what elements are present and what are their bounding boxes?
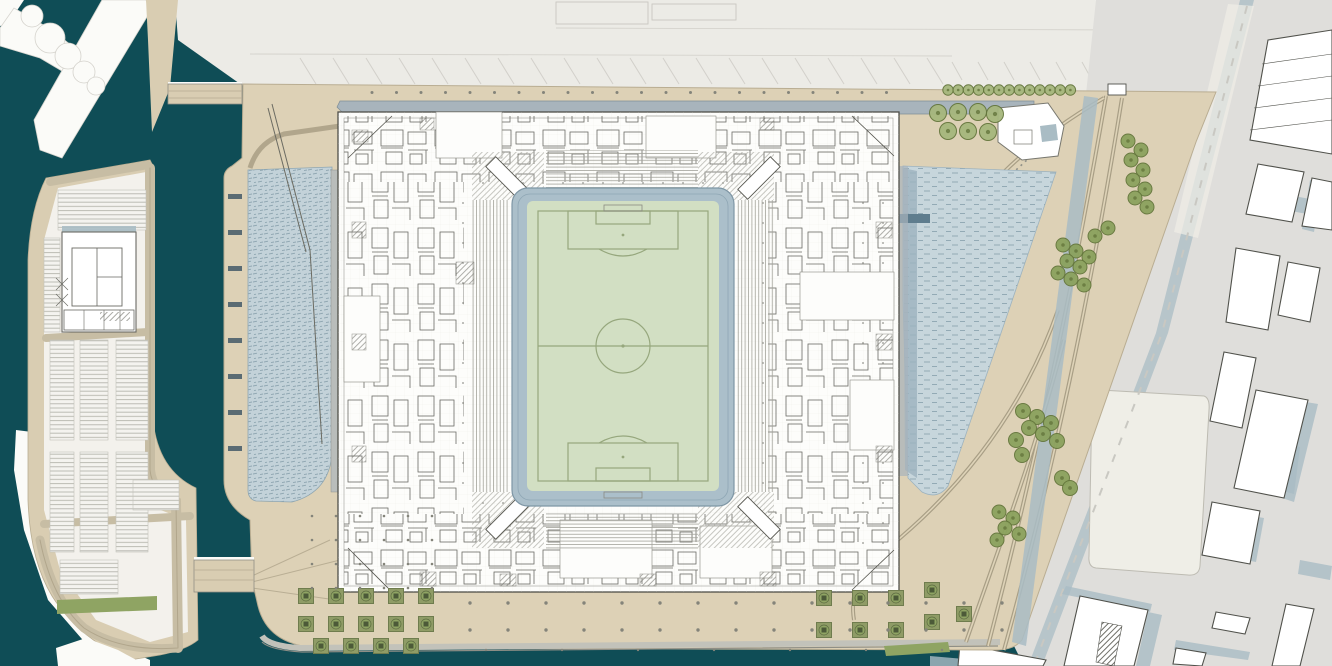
tree-center — [1143, 187, 1147, 191]
bollard-dot — [468, 601, 471, 604]
plaza-dot — [383, 587, 386, 590]
bollard-dot — [787, 91, 790, 94]
tree-center — [1049, 89, 1052, 92]
planter-grate — [364, 622, 369, 627]
north-bridge-deck — [168, 84, 242, 104]
mooring-dolphin — [228, 266, 242, 271]
tree-center — [947, 89, 950, 92]
bollard-dot — [493, 91, 496, 94]
planter-grate — [349, 644, 354, 649]
plaza-dot — [335, 587, 338, 590]
mooring-dolphin — [228, 302, 242, 307]
north-bridge — [168, 82, 242, 104]
tree-center — [1059, 89, 1062, 92]
planter-grate — [424, 594, 429, 599]
tree-center — [1039, 89, 1042, 92]
bollard-dot — [689, 91, 692, 94]
bollard-dot — [468, 628, 471, 631]
south-bridge — [194, 557, 254, 592]
stair-core — [760, 118, 774, 130]
west-water-texture — [248, 167, 332, 502]
planter-grate — [822, 596, 827, 601]
bollard-dot — [485, 649, 487, 651]
stair-core — [760, 572, 776, 586]
bollard-dot — [616, 91, 619, 94]
bollard-dot — [620, 628, 623, 631]
tree-center — [1126, 139, 1130, 143]
bollard-dot — [582, 628, 585, 631]
tree-center — [957, 89, 960, 92]
stadium-hall — [436, 112, 502, 158]
pier-building-plant — [100, 312, 130, 321]
planter-grate — [394, 594, 399, 599]
plaza-dot — [407, 563, 410, 566]
bollard-dot — [848, 628, 851, 631]
bollard-dot — [885, 91, 888, 94]
mooring-dolphin — [228, 410, 242, 415]
plaza-dot — [359, 515, 362, 518]
planter-grate — [930, 620, 935, 625]
stair-core — [456, 262, 474, 284]
tree-center — [1078, 265, 1082, 269]
planter-grate — [409, 644, 414, 649]
tree-center — [1129, 158, 1133, 162]
parking-rows — [44, 238, 60, 332]
bollard-dot — [772, 628, 775, 631]
tree-center — [1020, 453, 1024, 457]
tree-center — [1060, 476, 1064, 480]
plaza-dot — [431, 563, 434, 566]
tree-center — [1065, 259, 1069, 263]
tree-center — [1018, 89, 1021, 92]
stair-core — [876, 334, 892, 350]
urban-building — [1202, 502, 1260, 564]
tree-center — [946, 129, 950, 133]
bollard-dot — [395, 91, 398, 94]
stair-core — [500, 574, 516, 586]
south-bridge-deck — [194, 560, 254, 592]
stair-core — [352, 130, 368, 142]
plaza-dot — [431, 515, 434, 518]
tree-center — [1017, 532, 1021, 536]
tree-center — [1074, 249, 1078, 253]
bollard-dot — [469, 91, 472, 94]
tree-center — [998, 89, 1001, 92]
bollard-dot — [941, 649, 943, 651]
bollard-dot — [542, 91, 545, 94]
tree-center — [1082, 283, 1086, 287]
bollard-dot — [772, 601, 775, 604]
bollard-dot — [696, 628, 699, 631]
stadium-hall — [850, 380, 894, 450]
planter-grate — [858, 596, 863, 601]
bollard-dot — [812, 91, 815, 94]
bollard-dot — [620, 601, 623, 604]
bollard-dot — [1000, 628, 1003, 631]
bollard-dot — [637, 649, 639, 651]
planter-grate — [364, 594, 369, 599]
bollard-dot — [836, 91, 839, 94]
plaza-dot — [311, 563, 314, 566]
planter-grate — [424, 622, 429, 627]
tree-center — [1133, 196, 1137, 200]
stair-core — [876, 446, 892, 462]
planter-grate — [394, 622, 399, 627]
bollard-dot — [371, 91, 374, 94]
bollard-dot — [658, 628, 661, 631]
bollard-dot — [506, 601, 509, 604]
ne-building-roof-piece — [1040, 124, 1058, 142]
planter-grate — [304, 594, 309, 599]
bollard-dot — [582, 601, 585, 604]
tree-center — [995, 538, 999, 542]
bollard-dot — [734, 628, 737, 631]
mooring-dolphin — [228, 374, 242, 379]
tree-center — [1106, 226, 1110, 230]
tree-center — [1049, 421, 1053, 425]
plaza-dot — [359, 563, 362, 566]
bollard-dot — [665, 91, 668, 94]
tree-center — [977, 89, 980, 92]
plaza-dot — [359, 587, 362, 590]
mooring-dolphin — [228, 230, 242, 235]
tree-center — [956, 110, 960, 114]
planter-grate — [894, 628, 899, 633]
planter-grate — [319, 644, 324, 649]
mooring-dolphin — [228, 338, 242, 343]
planter-grate — [858, 628, 863, 633]
tree-center — [967, 89, 970, 92]
tree-center — [1027, 426, 1031, 430]
bollard-dot — [658, 601, 661, 604]
bollard-dot — [567, 91, 570, 94]
planter-grate — [894, 596, 899, 601]
tree-center — [976, 110, 980, 114]
tree-center — [997, 510, 1001, 514]
mooring-dolphin — [228, 194, 242, 199]
bollard-dot — [861, 91, 864, 94]
tree-center — [1014, 438, 1018, 442]
bollard-dot — [444, 91, 447, 94]
plaza-dot — [407, 539, 410, 542]
tree-center — [1131, 178, 1135, 182]
tree-center — [1008, 89, 1011, 92]
plaza-dot — [431, 587, 434, 590]
tree-center — [966, 129, 970, 133]
tree-center — [1087, 255, 1091, 259]
bollard-dot — [848, 601, 851, 604]
bollard-dot — [962, 628, 965, 631]
parking-rows — [50, 340, 74, 440]
bollard-dot — [518, 91, 521, 94]
planter-grate — [379, 644, 384, 649]
tree-center — [1056, 271, 1060, 275]
planter-grate — [304, 622, 309, 627]
parking-rows — [133, 480, 179, 510]
stair-core — [352, 446, 366, 462]
parking-rows — [60, 560, 118, 594]
bollard-dot — [763, 91, 766, 94]
bollard-dot — [420, 91, 423, 94]
tree-center — [1145, 205, 1149, 209]
parking-rows — [116, 340, 148, 440]
development-parcel — [1089, 390, 1209, 575]
plaza-dot — [383, 539, 386, 542]
stair-core — [420, 572, 436, 586]
bollard-dot — [886, 628, 889, 631]
stair-core — [420, 118, 434, 130]
stair-core — [352, 222, 366, 238]
plaza-dot — [311, 515, 314, 518]
bollard-dot — [544, 628, 547, 631]
plaza-dot — [383, 515, 386, 518]
plaza-dot — [431, 539, 434, 542]
bollard-dot — [789, 649, 791, 651]
tree-center — [1011, 516, 1015, 520]
bollard-dot — [1000, 601, 1003, 604]
plaza-dot — [335, 563, 338, 566]
pitch — [512, 188, 734, 506]
plaza-dot — [335, 539, 338, 542]
planter-grate — [334, 594, 339, 599]
tree-center — [1055, 439, 1059, 443]
plaza-dot — [383, 563, 386, 566]
stair-core — [876, 222, 892, 238]
pier-building — [56, 226, 136, 332]
tree-center — [1041, 432, 1045, 436]
plaza-dot — [359, 539, 362, 542]
bollard-dot — [962, 601, 965, 604]
bollard-dot — [924, 601, 927, 604]
bollard-dot — [696, 601, 699, 604]
plaza-dot — [335, 515, 338, 518]
gate-kiosk — [1108, 84, 1126, 95]
bollard-dot — [713, 649, 715, 651]
plaza-dot — [407, 587, 410, 590]
plaza-dot — [311, 539, 314, 542]
tree-center — [1069, 277, 1073, 281]
planter-grate — [822, 628, 827, 633]
stair-core — [640, 574, 656, 586]
site-plan-canvas — [0, 0, 1332, 666]
stair-core — [352, 334, 366, 350]
tree-center — [1061, 243, 1065, 247]
planter-grate — [930, 588, 935, 593]
bollard-dot — [738, 91, 741, 94]
tree-center — [1141, 168, 1145, 172]
bollard-dot — [865, 649, 867, 651]
plaza-dot — [407, 515, 410, 518]
tree-center — [1139, 148, 1143, 152]
stadium-hall — [800, 272, 894, 320]
tree-center — [986, 130, 990, 134]
bollard-dot — [734, 601, 737, 604]
tree-center — [1093, 234, 1097, 238]
parking-rows — [50, 452, 74, 552]
bollard-dot — [561, 649, 563, 651]
plaza-dot — [311, 587, 314, 590]
tree-center — [936, 111, 940, 115]
bollard-dot — [544, 601, 547, 604]
bollard-dot — [924, 628, 927, 631]
bollard-dot — [506, 628, 509, 631]
bollard-dot — [810, 628, 813, 631]
tree-center — [1035, 415, 1039, 419]
bollard-dot — [810, 601, 813, 604]
parking-rows — [80, 340, 108, 440]
tree-center — [1021, 409, 1025, 413]
tree-center — [988, 89, 991, 92]
tree-center — [993, 112, 997, 116]
tree-center — [1069, 89, 1072, 92]
bollard-dot — [714, 91, 717, 94]
bollard-dot — [886, 601, 889, 604]
bollard-dot — [640, 91, 643, 94]
tree-center — [1028, 89, 1031, 92]
parking-rows — [80, 452, 108, 552]
parking-rows — [58, 190, 146, 230]
bollard-dot — [591, 91, 594, 94]
tree-center — [1068, 486, 1072, 490]
planter-grate — [962, 612, 967, 617]
planter-grate — [334, 622, 339, 627]
mooring-dolphin — [228, 446, 242, 451]
tree-center — [1003, 526, 1007, 530]
